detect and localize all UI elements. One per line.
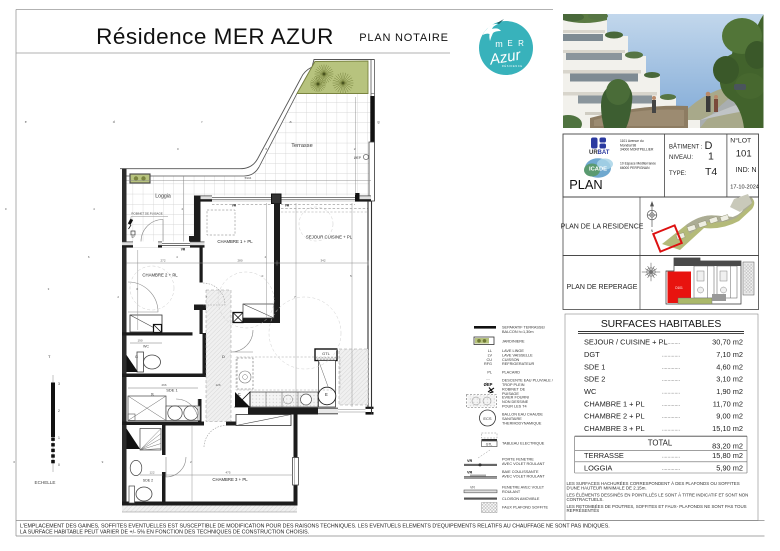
svg-text:SEJOUR CUISINE + PL: SEJOUR CUISINE + PL (306, 235, 353, 240)
svg-text:101: 101 (736, 149, 752, 160)
svg-text:CHAMBRE 2 + PL: CHAMBRE 2 + PL (584, 412, 645, 421)
svg-text:D101: D101 (675, 286, 683, 290)
svg-text:30,70 m2: 30,70 m2 (712, 338, 743, 347)
svg-text:LAVE VAISSELLE: LAVE VAISSELLE (502, 353, 533, 357)
svg-text:66000 PERPIGNAN: 66000 PERPIGNAN (620, 166, 650, 170)
svg-text:.............: ............. (662, 453, 680, 459)
svg-text:.............: ............. (662, 377, 680, 383)
svg-text:335: 335 (0, 287, 138, 290)
svg-text:VR: VR (181, 248, 186, 252)
svg-text:2: 2 (58, 409, 60, 413)
svg-text:VR: VR (467, 471, 473, 475)
svg-text:ECHELLE: ECHELLE (35, 480, 56, 485)
svg-text:PL: PL (487, 370, 492, 374)
svg-text:126: 126 (215, 383, 220, 387)
svg-text:.............: ............. (662, 340, 680, 346)
svg-text:4,60 m2: 4,60 m2 (716, 362, 743, 371)
svg-text:TABLEAU ELECTRIQUE: TABLEAU ELECTRIQUE (502, 442, 545, 446)
svg-text:SEPARATIF TERRASSE/: SEPARATIF TERRASSE/ (502, 325, 546, 329)
svg-text:PLAN DE REPERAGE: PLAN DE REPERAGE (567, 284, 638, 291)
svg-text:AVEC VOLET ROULANT: AVEC VOLET ROULANT (502, 462, 545, 466)
svg-text:REFRIGERATEUR: REFRIGERATEUR (502, 362, 534, 366)
svg-text:ROBINET DE PUISAGE: ROBINET DE PUISAGE (131, 212, 162, 216)
svg-text:CONTRACTUELS.: CONTRACTUELS. (567, 497, 604, 502)
svg-text:1: 1 (708, 150, 714, 162)
svg-text:83,20 m2: 83,20 m2 (712, 441, 743, 450)
svg-text:CHAMBRE 1 + PL: CHAMBRE 1 + PL (217, 239, 253, 244)
svg-text:EVIER FOURNI: EVIER FOURNI (502, 396, 529, 400)
svg-text:BÂTIMENT :: BÂTIMENT : (669, 143, 703, 150)
svg-text:SDE 2: SDE 2 (143, 479, 153, 483)
svg-text:T4: T4 (705, 166, 717, 178)
svg-text:.............: ............. (662, 352, 680, 358)
svg-text:.............: ............. (662, 466, 680, 472)
svg-text:GTL: GTL (322, 351, 331, 356)
svg-text:CLOISON AMOVIBLE: CLOISON AMOVIBLE (502, 497, 540, 501)
svg-text:CHAMBRE 1 + PL: CHAMBRE 1 + PL (584, 399, 645, 408)
svg-text:JARDINIERE: JARDINIERE (502, 340, 525, 344)
svg-text:ROULANT: ROULANT (502, 490, 521, 494)
svg-text:NIVEAU:: NIVEAU: (669, 155, 693, 161)
svg-text:15,80 m2: 15,80 m2 (712, 451, 743, 460)
svg-text:Résidence MER AZUR: Résidence MER AZUR (96, 24, 334, 49)
svg-text:TROP PLEIN: TROP PLEIN (502, 383, 525, 387)
svg-text:3,10 m2: 3,10 m2 (716, 375, 743, 384)
svg-text:3: 3 (58, 382, 60, 386)
svg-text:CHAMBRE 3 + PL: CHAMBRE 3 + PL (212, 477, 248, 482)
svg-text:FENETRE AVEC VOLET: FENETRE AVEC VOLET (502, 486, 545, 490)
svg-text:475: 475 (225, 471, 230, 475)
svg-text:LL: LL (488, 349, 492, 353)
svg-text:L'EMPLACEMENT DES GAINES, SOFF: L'EMPLACEMENT DES GAINES, SOFFITES EVENT… (20, 523, 610, 529)
svg-text:DGT: DGT (584, 350, 600, 359)
svg-text:ROBINET DE: ROBINET DE (502, 388, 526, 392)
svg-text:1: 1 (58, 436, 60, 440)
svg-text:FAUX PLAFOND SOFFITE: FAUX PLAFOND SOFFITE (502, 506, 548, 510)
svg-text:SEJOUR / CUISINE + PL: SEJOUR / CUISINE + PL (584, 338, 668, 347)
svg-text:WC: WC (143, 345, 149, 349)
svg-text:SDE 1: SDE 1 (584, 362, 605, 371)
svg-text:GTL: GTL (486, 443, 493, 447)
svg-text:D'UNE HAUTEUR MINIMALE DE 2.1: D'UNE HAUTEUR MINIMALE DE 2.15m. (567, 486, 647, 491)
svg-text:N°LOT: N°LOT (730, 137, 751, 145)
svg-text:SANITAIRE: SANITAIRE (502, 417, 522, 421)
svg-text:5,90 m2: 5,90 m2 (716, 463, 743, 472)
svg-text:CHAMBRE 2 + PL: CHAMBRE 2 + PL (142, 273, 178, 278)
svg-text:NON DESSINE: NON DESSINE (502, 400, 529, 404)
svg-text:PLACARD: PLACARD (502, 370, 520, 374)
svg-text:SURFACES HABITABLES: SURFACES HABITABLES (601, 319, 721, 330)
svg-text:TYPE:: TYPE: (669, 171, 687, 177)
svg-text:R É S I D E N C E: R É S I D E N C E (502, 65, 522, 68)
svg-text:290: 290 (13, 460, 192, 463)
svg-text:m: m (495, 39, 503, 49)
svg-text:LV: LV (488, 353, 493, 357)
svg-text:266: 266 (161, 383, 166, 387)
svg-text:ECS: ECS (483, 416, 492, 421)
svg-text:TOTAL: TOTAL (648, 439, 673, 448)
svg-text:.............: ............. (662, 365, 680, 371)
svg-text:WC: WC (584, 387, 597, 396)
svg-text:Terrasse: Terrasse (291, 143, 312, 149)
svg-text:LOGGIA: LOGGIA (584, 463, 612, 472)
svg-text:DESCENTE EAU PLUVIALE /: DESCENTE EAU PLUVIALE / (502, 379, 554, 383)
svg-text:7,10 m2: 7,10 m2 (716, 350, 743, 359)
svg-text:ØEP: ØEP (354, 156, 362, 160)
svg-text:VR: VR (232, 204, 237, 208)
svg-text:34000 MONTPELLIER: 34000 MONTPELLIER (620, 148, 654, 152)
svg-text:272: 272 (160, 259, 165, 263)
svg-text:0: 0 (58, 463, 60, 467)
svg-text:POUR LES T4: POUR LES T4 (502, 405, 527, 409)
svg-text:RFG: RFG (484, 362, 492, 366)
svg-text:PLAN DE LA RESIDENCE: PLAN DE LA RESIDENCE (561, 224, 644, 231)
svg-text:LAVE LINGE: LAVE LINGE (502, 349, 524, 353)
svg-text:SDE 2: SDE 2 (584, 375, 605, 384)
svg-text:.............: ............. (662, 427, 680, 433)
svg-text:Loggia: Loggia (155, 194, 171, 200)
svg-text:5904: 5904 (245, 176, 252, 180)
svg-text:N: N (651, 229, 654, 233)
svg-text:REPRÉSENTÉS: REPRÉSENTÉS (567, 508, 600, 513)
svg-text:1,90 m2: 1,90 m2 (716, 387, 743, 396)
svg-text:BAIE COULISSANTE: BAIE COULISSANTE (502, 470, 539, 474)
svg-text:VR: VR (285, 204, 290, 208)
svg-text:PLAN NOTAIRE: PLAN NOTAIRE (359, 32, 448, 44)
svg-text:IND: N: IND: N (736, 167, 757, 174)
svg-text:CU: CU (487, 358, 493, 362)
svg-text:280: 280 (237, 259, 242, 263)
svg-text:ICADE: ICADE (589, 167, 607, 173)
svg-text:.............: ............. (662, 390, 680, 396)
svg-text:122: 122 (149, 471, 154, 475)
svg-text:9,00 m2: 9,00 m2 (716, 412, 743, 421)
svg-text:BALLON EAU CHAUDE: BALLON EAU CHAUDE (502, 413, 543, 417)
svg-text:CHAMBRE 3 + PL: CHAMBRE 3 + PL (584, 424, 645, 433)
svg-text:BALCON h=1,30m: BALCON h=1,30m (502, 330, 534, 334)
svg-text:AVEC VOLET ROULANT: AVEC VOLET ROULANT (502, 474, 545, 478)
svg-text:CUISSON: CUISSON (502, 358, 520, 362)
svg-text:PLAN: PLAN (569, 177, 602, 192)
svg-text:E: E (507, 39, 512, 48)
svg-text:342: 342 (320, 259, 325, 263)
svg-text:11,70 m2: 11,70 m2 (713, 399, 743, 408)
svg-text:15,10 m2: 15,10 m2 (712, 424, 743, 433)
svg-text:BAT: BAT (598, 150, 610, 156)
svg-text:LA SURFACE HABITABLE PEUT VARI: LA SURFACE HABITABLE PEUT VARIER DE +/- … (20, 530, 309, 536)
svg-text:97: 97 (131, 235, 135, 239)
svg-text:ØEP: ØEP (484, 382, 493, 387)
svg-text:17-10-2024: 17-10-2024 (730, 184, 759, 190)
svg-text:DGT: DGT (48, 355, 225, 358)
svg-text:.............: ............. (662, 414, 680, 420)
svg-text:VR: VR (470, 486, 475, 490)
svg-text:190: 190 (137, 339, 142, 343)
svg-text:TERRASSE: TERRASSE (584, 451, 624, 460)
svg-text:R: R (518, 39, 524, 48)
svg-text:VR: VR (467, 459, 473, 463)
svg-text:.............: ............. (662, 402, 680, 408)
svg-text:THERMODYNAMIQUE: THERMODYNAMIQUE (502, 422, 542, 426)
svg-text:PORTE FENETRE: PORTE FENETRE (502, 457, 534, 461)
